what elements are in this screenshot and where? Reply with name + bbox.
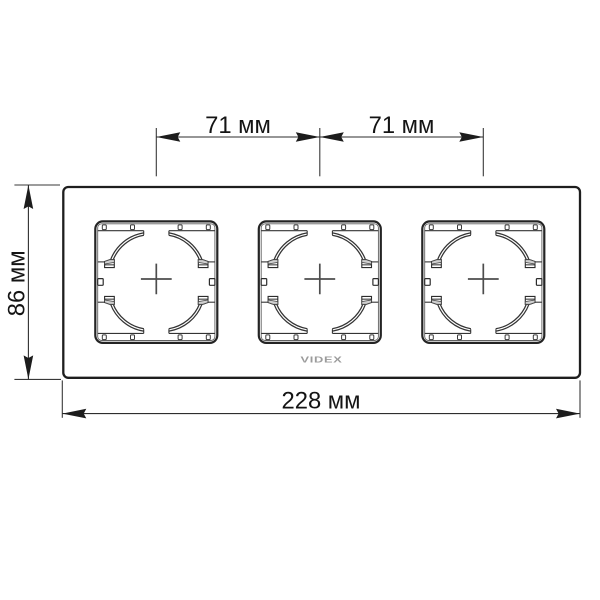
- svg-text:86 мм: 86 мм: [3, 250, 30, 316]
- svg-text:228 мм: 228 мм: [281, 387, 360, 414]
- svg-text:71 мм: 71 мм: [205, 112, 271, 139]
- svg-text:VIDEX: VIDEX: [300, 356, 342, 365]
- svg-text:71 мм: 71 мм: [369, 112, 435, 139]
